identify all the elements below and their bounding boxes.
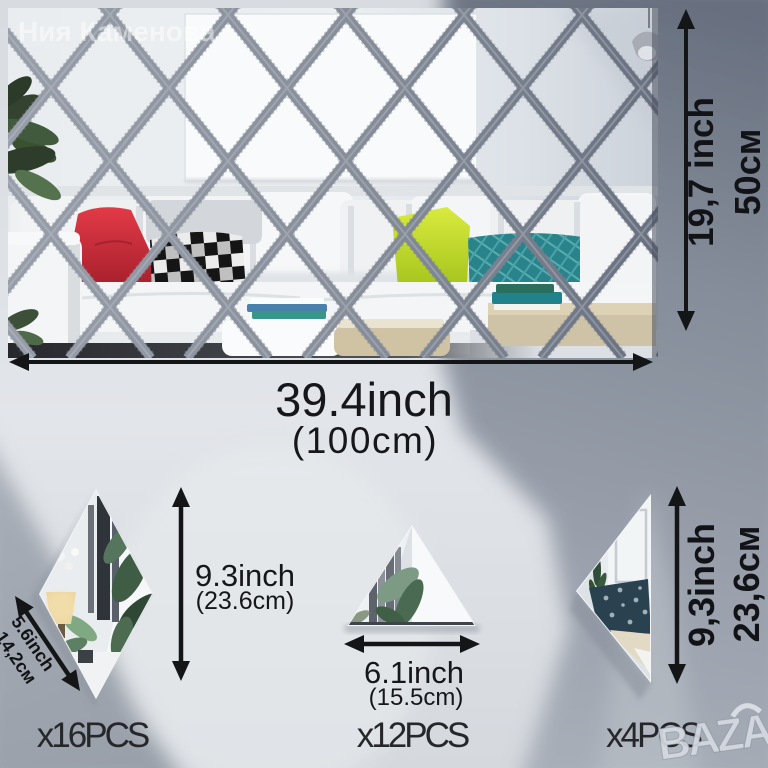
svg-text:(23.6cm): (23.6cm) [196, 587, 295, 615]
svg-text:50см: 50см [727, 129, 768, 216]
svg-text:19,7 inch: 19,7 inch [682, 97, 721, 247]
svg-text:(100cm): (100cm) [292, 420, 438, 461]
svg-text:9,3inch: 9,3inch [681, 523, 722, 647]
svg-text:x16PCS: x16PCS [37, 716, 149, 755]
svg-text:x12PCS: x12PCS [357, 716, 469, 755]
svg-text:39.4inch: 39.4inch [275, 373, 453, 426]
svg-text:(15.5cm): (15.5cm) [369, 684, 464, 711]
svg-text:23,6см: 23,6см [726, 526, 767, 643]
svg-text:Ния Каменова: Ния Каменова [18, 16, 216, 47]
